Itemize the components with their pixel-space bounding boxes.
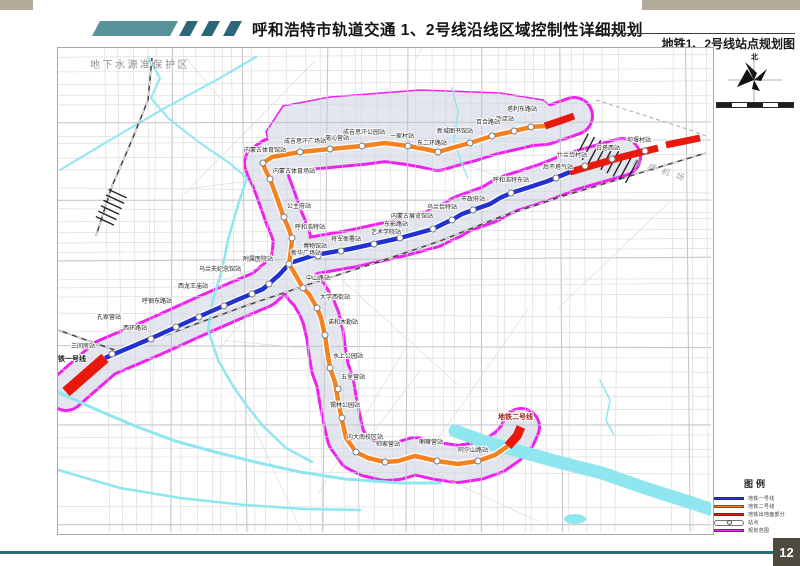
station-label: 市政府站 <box>461 195 485 203</box>
airport-label: 白塔机场 <box>631 157 691 184</box>
legend-item-label: 规划范围 <box>748 527 769 534</box>
legend-item: 站点 <box>714 519 798 526</box>
station-marker <box>449 217 455 223</box>
line-swatch-icon <box>714 505 744 508</box>
station-label: 诺和木勒站 <box>328 318 358 326</box>
station-marker <box>109 351 115 357</box>
station-marker <box>314 305 320 311</box>
station-marker <box>221 303 227 309</box>
map-frame: 三间房站西环路站孔家营站呼钢东路站西龙王庙站乌兰夫纪念馆站附属医院站新华广场站博… <box>57 47 714 535</box>
legend-item-label: 地铁一号线 <box>748 495 775 502</box>
station-marker <box>322 332 328 338</box>
station-marker <box>327 365 333 371</box>
station-label: 呼和浩特站 <box>295 223 325 231</box>
station-label: 东影路站 <box>384 220 408 228</box>
station-label: 百合路站 <box>476 118 500 126</box>
station-label: 成吉思汗广场站 <box>284 137 326 145</box>
station-label: 附属医院站 <box>243 255 273 263</box>
station-label: 水上公园站 <box>333 352 363 360</box>
station-label: 孔家营站 <box>97 313 121 321</box>
station-label: 大学西街站 <box>320 293 350 301</box>
station-marker <box>359 143 365 149</box>
station-label: 五里营站 <box>341 373 365 381</box>
legend-title: 图例 <box>714 477 798 490</box>
station-label: 中山路站 <box>306 274 330 282</box>
station-marker <box>553 175 559 181</box>
station-marker <box>470 207 476 213</box>
station-marker <box>582 163 588 169</box>
station-label: 内大南校区站 <box>347 433 383 441</box>
station-marker <box>173 324 179 330</box>
station-label: 坝堰村站 <box>627 136 651 144</box>
station-marker <box>467 140 473 146</box>
header-deco-stripe <box>201 21 220 36</box>
station-marker <box>281 214 287 220</box>
station-marker <box>382 459 388 465</box>
station-marker <box>266 281 272 287</box>
legend-item: 地铁二号线 <box>714 503 798 510</box>
station-marker <box>642 148 648 154</box>
river <box>600 380 614 435</box>
station-label: 毫沁营站 <box>325 134 349 142</box>
station-label: 三间房站 <box>71 342 95 350</box>
north-label: 北 <box>751 52 758 61</box>
protection-zone-label: 地下水源准保护区 <box>90 58 190 71</box>
legend-item: 地铁一号线 <box>714 495 798 502</box>
station-label: 帅家营站 <box>376 440 400 448</box>
scale-bar <box>716 102 794 108</box>
compass: 北 <box>718 50 790 106</box>
document-page: 呼和浩特市轨道交通 1、2号线沿线区域控制性详细规划 地铁1、2号线站点规划图 … <box>0 0 800 566</box>
line1-terminal-label: 地铁一号线 <box>58 354 86 363</box>
station-marker <box>609 156 615 162</box>
station-label: 东二环路站 <box>417 139 447 147</box>
pond <box>564 514 586 524</box>
map-canvas: 三间房站西环路站孔家营站呼钢东路站西龙王庙站乌兰夫纪念馆站附属医院站新华广场站博… <box>58 48 711 532</box>
station-marker <box>528 124 534 130</box>
station-marker <box>286 261 292 267</box>
station-marker <box>289 235 295 241</box>
legend-item: 地铁出地面部分 <box>714 511 798 518</box>
station-label: 内蒙古体育场站 <box>273 167 315 175</box>
station-marker <box>267 176 273 182</box>
station-label: 乌兰夫纪念馆站 <box>199 265 241 273</box>
station-marker <box>335 386 341 392</box>
station-marker <box>430 226 436 232</box>
station-label: 呼和浩特东站 <box>493 176 529 184</box>
airport-boundary <box>596 100 706 136</box>
station-marker <box>327 146 333 152</box>
station-symbol-icon <box>714 520 744 526</box>
page-number: 12 <box>773 538 800 566</box>
station-marker <box>405 143 411 149</box>
station-label: 锡林公园站 <box>330 401 360 409</box>
station-marker <box>435 149 441 155</box>
station-marker <box>300 285 306 291</box>
station-label: 喇嘛营站 <box>419 438 443 446</box>
legend-item-label: 站点 <box>748 519 759 526</box>
line-swatch-icon <box>714 529 744 532</box>
station-label: 将军衙署站 <box>331 235 361 243</box>
station-marker <box>371 241 377 247</box>
station-marker <box>434 458 440 464</box>
station-label: 后不塔气站 <box>543 163 573 171</box>
station-label: 什兰岱村站 <box>557 151 587 159</box>
station-label: 博物馆站 <box>303 242 327 250</box>
station-label: 内蒙古体育馆站 <box>244 146 286 154</box>
station-marker <box>489 133 495 139</box>
station-label: 阿尔山路站 <box>458 446 488 454</box>
station-marker <box>249 291 255 297</box>
station-marker <box>260 160 266 166</box>
station-label: 公主府站 <box>287 202 311 210</box>
station-marker <box>339 415 345 421</box>
station-label: 乌兰恰特站 <box>427 203 457 211</box>
header-deco-stripe <box>179 21 198 36</box>
header-deco-parallelogram <box>92 21 178 36</box>
river <box>58 470 360 510</box>
station-label: 艺术学院站 <box>371 228 401 236</box>
station-marker <box>511 128 517 134</box>
station-label: 一家村站 <box>390 132 414 140</box>
legend-item: 规划范围 <box>714 527 798 534</box>
station-marker <box>475 458 481 464</box>
subtitle-rule <box>586 33 795 34</box>
line2-terminal-label: 地铁二号线 <box>498 412 533 421</box>
station-label: 内蒙古展览馆站 <box>391 212 433 220</box>
top-bar-left <box>0 0 33 10</box>
station-label: 新华广场站 <box>291 249 321 257</box>
line-swatch-icon <box>714 513 744 516</box>
legend-item-label: 地铁出地面部分 <box>748 511 785 518</box>
legend: 图例 地铁一号线地铁二号线地铁出地面部分站点规划范围 <box>714 477 798 535</box>
legend-item-label: 地铁二号线 <box>748 503 775 510</box>
footer-rule <box>0 551 773 554</box>
station-marker <box>148 336 154 342</box>
station-marker <box>297 149 303 155</box>
station-marker <box>196 314 202 320</box>
station-marker <box>508 190 514 196</box>
header-deco-stripe <box>223 21 242 36</box>
top-bar-right <box>642 0 800 10</box>
line-swatch-icon <box>714 497 744 500</box>
station-label: 白塔西站 <box>596 144 620 152</box>
station-marker <box>338 248 344 254</box>
station-label: 成吉思汗公园站 <box>343 128 385 136</box>
station-label: 新城图书馆站 <box>437 127 473 135</box>
station-label: 西环路站 <box>123 324 147 332</box>
north-arrow-icon: 北 <box>718 50 790 106</box>
station-label: 塔利东路站 <box>507 105 537 113</box>
station-label: 呼钢东路站 <box>142 297 172 305</box>
station-marker <box>353 449 359 455</box>
station-label: 西龙王庙站 <box>178 282 208 290</box>
